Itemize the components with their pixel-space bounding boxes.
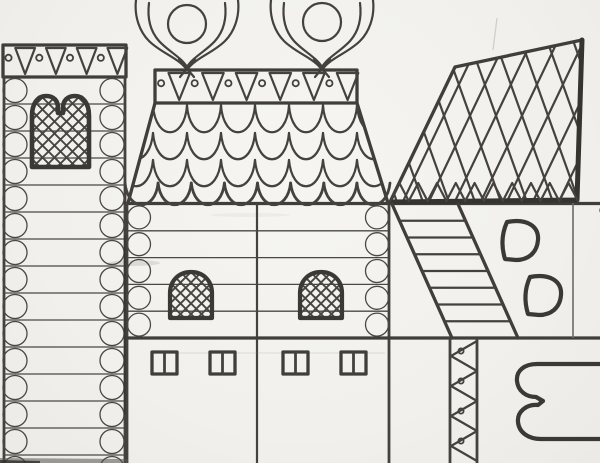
line-art-drawing bbox=[0, 0, 600, 463]
half-moon-window-upper bbox=[503, 221, 539, 260]
diamond-lattice-roof bbox=[310, 32, 600, 216]
scan-edge-shadow bbox=[0, 458, 128, 463]
onion-dome-right bbox=[271, 0, 374, 77]
lobed-bush-shape bbox=[517, 364, 600, 439]
roof-left-slope bbox=[128, 103, 155, 203]
log-tower bbox=[0, 45, 160, 463]
roof-right-slope bbox=[357, 103, 388, 203]
small-pane-windows bbox=[152, 352, 366, 374]
scanned-coloring-page: NADIA LEARNED © bbox=[0, 0, 600, 463]
eave-scallops bbox=[125, 183, 390, 205]
fish-scale-shingles bbox=[119, 103, 391, 186]
half-moon-window-lower bbox=[526, 276, 562, 315]
onion-dome-left bbox=[136, 0, 239, 77]
staircase bbox=[392, 204, 518, 338]
tower-triangle-band bbox=[3, 45, 127, 77]
zigzag-post bbox=[450, 339, 477, 463]
